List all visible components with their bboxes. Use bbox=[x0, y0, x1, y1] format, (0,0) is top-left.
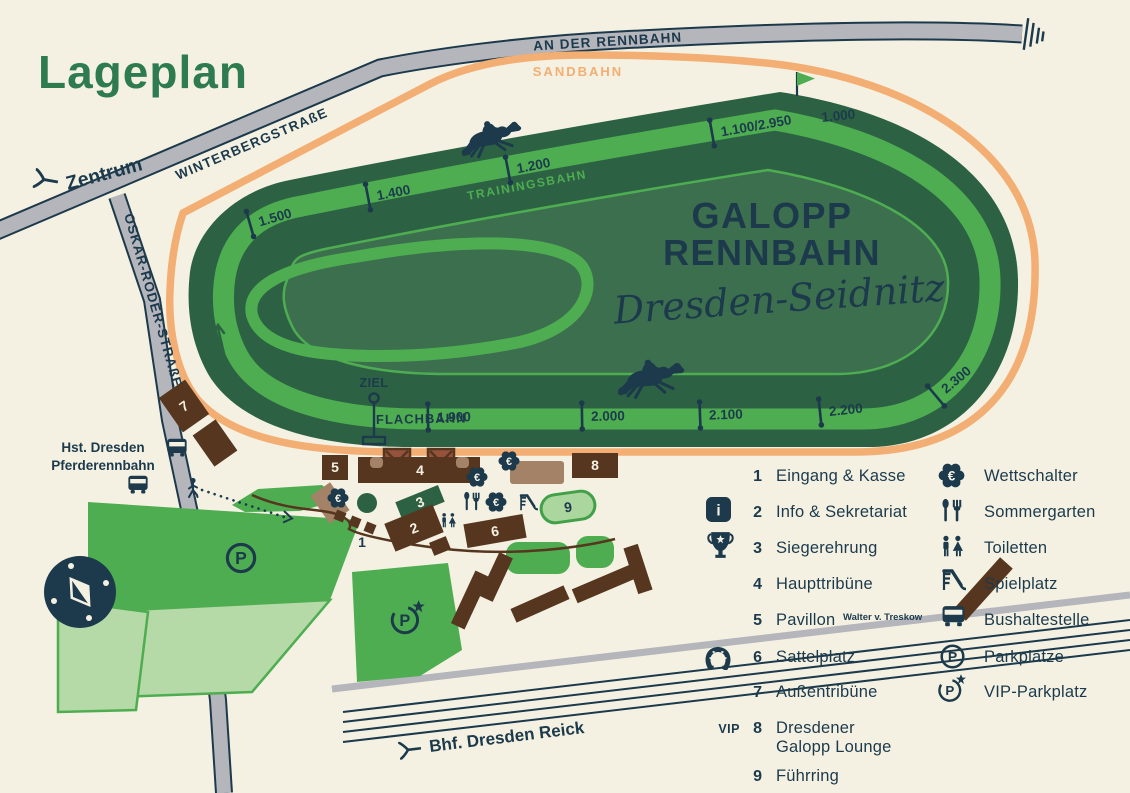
svg-text:2: 2 bbox=[753, 504, 762, 521]
compass-icon bbox=[44, 556, 116, 628]
svg-text:Parkplätze: Parkplätze bbox=[984, 648, 1064, 666]
betting-icon bbox=[939, 464, 965, 488]
building-number-4: 4 bbox=[416, 462, 424, 478]
playground-icon-map bbox=[521, 495, 538, 510]
legend-item-fuehrring: 9 Führring bbox=[753, 767, 839, 785]
building-galopp-lounge: 8 bbox=[572, 453, 618, 478]
toilets-icon bbox=[943, 536, 963, 556]
legend-item-sommergarten: Sommergarten bbox=[942, 499, 1095, 521]
stable-building bbox=[510, 585, 569, 622]
building-number-1: 1 bbox=[358, 534, 366, 550]
pavillon-suffix: Walter v. Treskow bbox=[843, 612, 923, 623]
legend-item-siegerehrung: 3 Siegerehrung bbox=[708, 532, 877, 558]
bus-stop-icon-map bbox=[128, 476, 147, 494]
info-icon bbox=[706, 497, 731, 522]
tree bbox=[357, 493, 377, 513]
betting-icon-map bbox=[485, 492, 506, 511]
legend-item-parkplaetze: Parkplätze bbox=[942, 646, 1064, 668]
parking-icon bbox=[942, 646, 964, 668]
svg-text:Siegerehrung: Siegerehrung bbox=[776, 539, 877, 557]
svg-text:6: 6 bbox=[753, 649, 762, 666]
svg-text:Führring: Führring bbox=[776, 767, 839, 785]
trophy-icon bbox=[708, 532, 732, 558]
sandbahn-label: SANDBAHN bbox=[533, 64, 623, 79]
svg-text:Spielplatz: Spielplatz bbox=[984, 575, 1058, 593]
bhf-arrow-icon bbox=[399, 740, 422, 758]
legend-item-eingang-kasse: 1 Eingang & Kasse bbox=[753, 467, 906, 485]
vip-parking-icon bbox=[937, 674, 966, 703]
svg-text:2.100: 2.100 bbox=[709, 407, 743, 423]
vip-badge: VIP bbox=[718, 722, 740, 736]
playground-icon bbox=[944, 570, 966, 590]
svg-text:Sattelplatz: Sattelplatz bbox=[776, 648, 855, 666]
horseshoe-icon bbox=[708, 649, 728, 667]
svg-text:Galopp Lounge: Galopp Lounge bbox=[776, 738, 891, 756]
svg-text:4: 4 bbox=[753, 576, 762, 593]
course-name-line1: GALOPP bbox=[691, 195, 852, 236]
road-end-hatches bbox=[1024, 18, 1045, 52]
svg-text:Eingang & Kasse: Eingang & Kasse bbox=[776, 467, 906, 485]
legend-item-toiletten: Toiletten bbox=[943, 536, 1047, 557]
building-number-8: 8 bbox=[591, 457, 599, 473]
svg-text:Haupttribüne: Haupttribüne bbox=[776, 575, 873, 593]
svg-text:VIP-Parkplatz: VIP-Parkplatz bbox=[984, 683, 1087, 701]
legend-item-sattelplatz: 6 Sattelplatz bbox=[708, 648, 855, 668]
svg-text:1.900: 1.900 bbox=[437, 409, 471, 425]
ziel-label: ZIEL bbox=[359, 376, 388, 390]
page-title: Lageplan bbox=[38, 46, 248, 98]
svg-text:8: 8 bbox=[753, 720, 762, 737]
fuehrring: 9 bbox=[539, 489, 596, 524]
legend-item-info-sekretariat: 2 Info & Sekretariat bbox=[706, 497, 907, 522]
svg-text:3: 3 bbox=[753, 540, 762, 557]
legend-item-haupttribuene: 4 Haupttribüne bbox=[753, 575, 873, 593]
svg-text:Dresdener: Dresdener bbox=[776, 719, 855, 737]
legend-item-vip-parkplatz: VIP-Parkplatz bbox=[937, 674, 1087, 703]
stable-building bbox=[572, 563, 640, 603]
svg-text:Pavillon: Pavillon bbox=[776, 611, 835, 629]
svg-text:5: 5 bbox=[753, 612, 762, 629]
toilets-icon-map bbox=[442, 513, 456, 527]
cutlery-icon bbox=[942, 499, 960, 520]
lageplan-map: € P P bbox=[0, 0, 1130, 793]
svg-text:Info & Sekretariat: Info & Sekretariat bbox=[776, 503, 907, 521]
legend-item-galopp-lounge: VIP 8 Dresdener Galopp Lounge bbox=[718, 719, 891, 756]
hst-label-line1: Hst. Dresden bbox=[61, 440, 144, 455]
svg-text:2.000: 2.000 bbox=[591, 408, 625, 424]
svg-text:Wettschalter: Wettschalter bbox=[984, 467, 1078, 485]
stable-building bbox=[451, 571, 489, 630]
legend-item-wettschalter: Wettschalter bbox=[939, 464, 1079, 488]
course-name-line2: RENNBAHN bbox=[663, 232, 881, 273]
building-tan bbox=[510, 461, 564, 484]
svg-text:Toiletten: Toiletten bbox=[984, 539, 1047, 557]
parking-area-green bbox=[88, 502, 360, 612]
building-number-5: 5 bbox=[331, 459, 339, 475]
svg-text:9: 9 bbox=[753, 768, 762, 785]
lageplan-page: € P P bbox=[0, 0, 1130, 793]
zentrum-arrow-icon bbox=[34, 169, 60, 190]
hst-label-line2: Pferderennbahn bbox=[51, 458, 155, 473]
svg-text:Bushaltestelle: Bushaltestelle bbox=[984, 611, 1090, 629]
building-pavillon: 5 bbox=[322, 455, 348, 480]
svg-text:1: 1 bbox=[753, 468, 762, 485]
svg-text:Außentribüne: Außentribüne bbox=[776, 683, 877, 701]
bus-icon bbox=[943, 606, 965, 626]
svg-text:Sommergarten: Sommergarten bbox=[984, 503, 1096, 521]
start-flag-icon bbox=[797, 72, 815, 96]
svg-text:7: 7 bbox=[753, 684, 762, 701]
sommergarten-icon-map bbox=[464, 492, 479, 509]
